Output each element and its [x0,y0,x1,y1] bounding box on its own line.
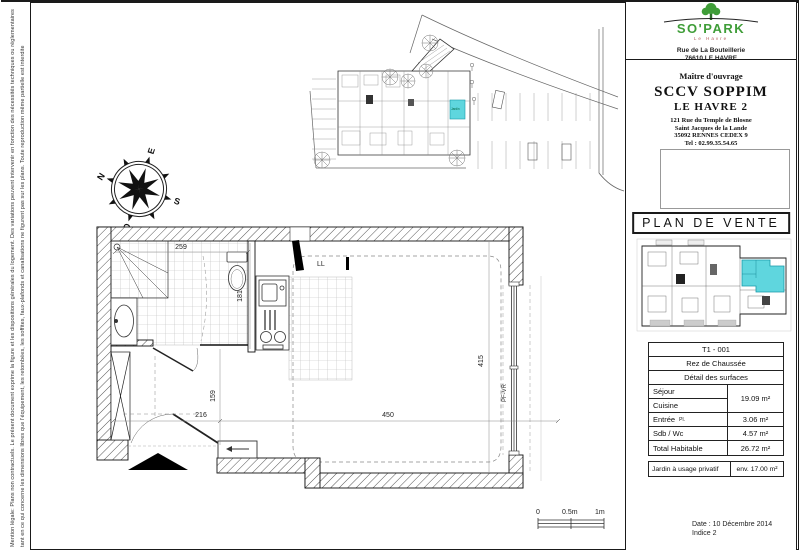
date-label: Date : 10 Décembre 2014 [692,521,772,530]
scale-bar: 0 0.5m 1m [532,504,617,536]
indice-label: Indice 2 [692,530,772,539]
logo-name: SO'PARK [677,21,745,36]
window-pf-vr [509,282,519,455]
dim-216: 216 [195,412,207,419]
entrance-marker-icon [128,453,188,470]
kitchen-block [256,276,289,350]
table-level-row: Rez de Chaussée [649,356,783,370]
car-icon [528,143,537,160]
entrance-step [218,441,257,458]
owner-address-line1: 121 Rue du Temple de Blosne [626,117,796,125]
table-row-entree: EntréePl. 3.06 m² [649,412,783,426]
compass-south-label: S [173,196,182,207]
jardin-label: Jardin à usage privatif [649,462,731,476]
burner-icon [275,332,286,343]
legal-text-line2: tant en ce qui concerne les dimensions l… [20,45,26,547]
table-unit-row: T1 - 001 [649,343,783,356]
title-panel: SO'PARK Le Havre Rue de La Bouteillerie … [625,2,797,550]
logo-place: Le Havre [694,36,728,41]
site-jardin-label: Jardin [451,107,460,111]
bathroom-partition-wall [248,241,255,352]
entree-note: Pl. [679,417,685,423]
compass-east-label: E [146,147,157,156]
owner-label: Maître d'ouvrage [626,71,796,81]
legal-strip: Mention légale: Plans non contractuels. … [1,2,31,550]
scale-05m: 0.5m [562,509,578,516]
total-label: Total Habitable [649,441,728,455]
owner-address-line3: 35092 RENNES CEDEX 9 [626,132,796,140]
bathroom-door [153,348,198,371]
key-plan-thumbnail [636,238,792,332]
sejour-label: Séjour [649,385,727,398]
date-block: Date : 10 Décembre 2014 Indice 2 [692,521,772,538]
compass-north-label: N [95,171,107,182]
burner-icon [261,332,272,343]
entree-label: Entrée [653,415,675,424]
table-detail-header: Détail des surfaces [649,370,783,384]
lamp-icons [470,63,476,105]
table-row-sdb: Sdb / Wc 4.57 m² [649,426,783,440]
floor-plan: LL 25 [93,216,568,506]
site-building-wing [412,39,454,71]
washing-machine-label: LL [317,261,325,268]
owner-address-line2: Saint Jacques de la Lande [626,125,796,133]
closet-placard [111,352,130,440]
scale-1m: 1m [595,509,605,516]
stamp-box [660,149,790,209]
radiator-icon [346,257,349,270]
legal-text-line1: Mention légale: Plans non contractuels. … [10,9,16,547]
entree-value: 3.06 m² [728,415,783,424]
owner-project: LE HAVRE 2 [626,101,796,113]
dim-181: 181 [237,290,244,302]
logo-address-line1: Rue de La Bouteillerie [626,47,796,55]
dim-159: 159 [210,390,217,402]
site-plan: Jardin [300,5,625,200]
site-stair-core [366,95,373,104]
pf-vr-label: PF-VR [502,383,508,402]
owner-block: Maître d'ouvrage SCCV SOPPIM LE HAVRE 2 … [626,60,796,147]
sejour-cuisine-value: 19.09 m² [728,385,783,412]
dim-259: 259 [175,244,187,251]
tree-icon [702,3,721,20]
sdb-value: 4.57 m² [728,429,783,438]
sdb-label: Sdb / Wc [649,427,728,440]
logo-block: SO'PARK Le Havre Rue de La Bouteillerie … [626,2,796,60]
kitchen-floor-tiles [289,277,352,380]
dim-450: 450 [382,412,394,419]
owner-phone: Tel : 02.99.35.54.65 [626,140,796,148]
washbasin [111,298,137,345]
car-icon [492,90,504,108]
sopark-logo-icon: SO'PARK Le Havre [646,2,776,42]
jardin-value: env. 17.00 m² [731,466,783,473]
top-wall-door-leaf [292,240,304,271]
owner-company: SCCV SOPPIM [626,84,796,101]
toilet [227,252,247,291]
surface-table: T1 - 001 Rez de Chaussée Détail des surf… [648,342,784,441]
scale-0: 0 [536,509,540,516]
car-icon [562,144,571,160]
dim-415: 415 [478,355,485,367]
table-row-sejour-cuisine: Séjour Cuisine 19.09 m² [649,384,783,412]
cuisine-label: Cuisine [649,398,727,412]
plan-de-vente-sheet: { "legal": { "line1": "Mention légale: P… [0,0,800,551]
total-habitable-box: Total Habitable 26.72 m² [648,440,784,456]
total-value: 26.72 m² [728,444,783,453]
jardin-box: Jardin à usage privatif env. 17.00 m² [648,461,784,477]
plan-de-vente-title: PLAN DE VENTE [632,212,790,234]
